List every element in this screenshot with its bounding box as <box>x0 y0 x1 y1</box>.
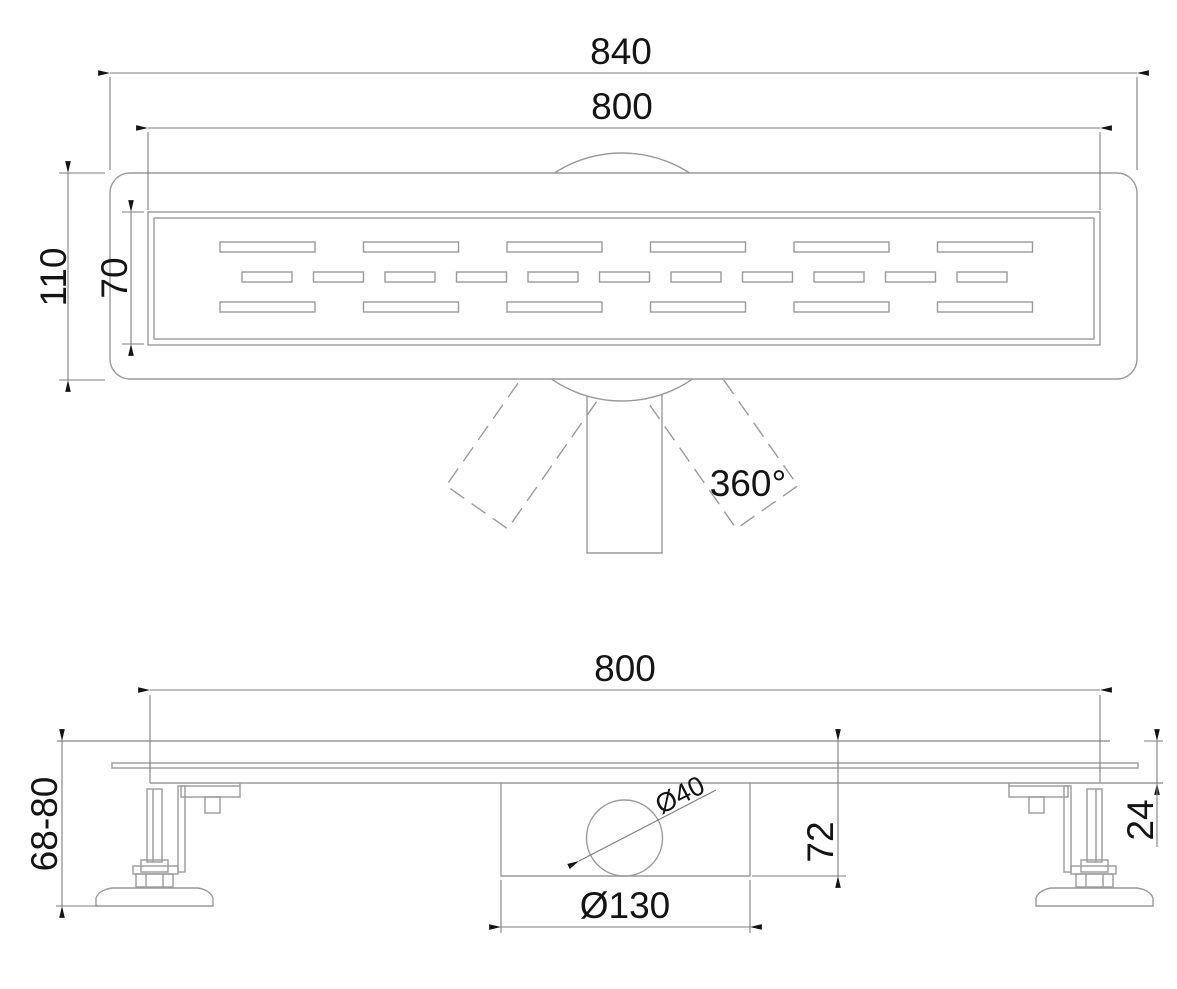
outlet-diameter-label: Ø40 <box>650 770 709 820</box>
top-view: 840 800 110 70 360° <box>33 31 1137 553</box>
dim-trap-depth: 72 <box>752 741 846 876</box>
dim-trap-diameter-label: Ø130 <box>580 885 671 926</box>
dim-overall-length-label: 840 <box>590 31 652 72</box>
drain-drawing-svg: 840 800 110 70 360° <box>0 0 1177 989</box>
dim-trap-depth-label: 72 <box>800 821 841 862</box>
dim-grate-width-label: 70 <box>94 257 135 298</box>
trap-box <box>501 783 750 876</box>
leg-threaded-rod <box>147 789 162 862</box>
dim-trap-diameter: Ø130 <box>501 880 750 933</box>
leg-foot <box>96 888 213 906</box>
side-view: Ø40 800 68-80 <box>24 648 1163 933</box>
leg-hex-nut <box>136 874 173 887</box>
dim-channel-depth: 24 <box>1120 741 1161 847</box>
dim-body-length: 800 <box>150 648 1100 690</box>
dim-adjustable-height: 68-80 <box>24 741 98 906</box>
leg-clamp-block <box>205 797 220 813</box>
technical-drawing-canvas: 840 800 110 70 360° <box>0 0 1177 989</box>
flange-plate <box>112 763 1138 768</box>
leg-bracket-tab <box>133 866 178 874</box>
leg-bracket-plate <box>181 786 240 797</box>
channel-body <box>110 173 1137 379</box>
dim-overall-width-label: 110 <box>33 248 74 307</box>
dim-channel-depth-label: 24 <box>1120 799 1161 840</box>
rotation-label: 360° <box>710 463 787 504</box>
dim-adjustable-height-label: 68-80 <box>24 777 65 872</box>
dim-body-length-label: 800 <box>594 648 656 689</box>
leg-bracket-vertical <box>178 786 185 872</box>
leg-left <box>96 783 240 906</box>
dim-grate-length-label: 800 <box>591 86 653 127</box>
